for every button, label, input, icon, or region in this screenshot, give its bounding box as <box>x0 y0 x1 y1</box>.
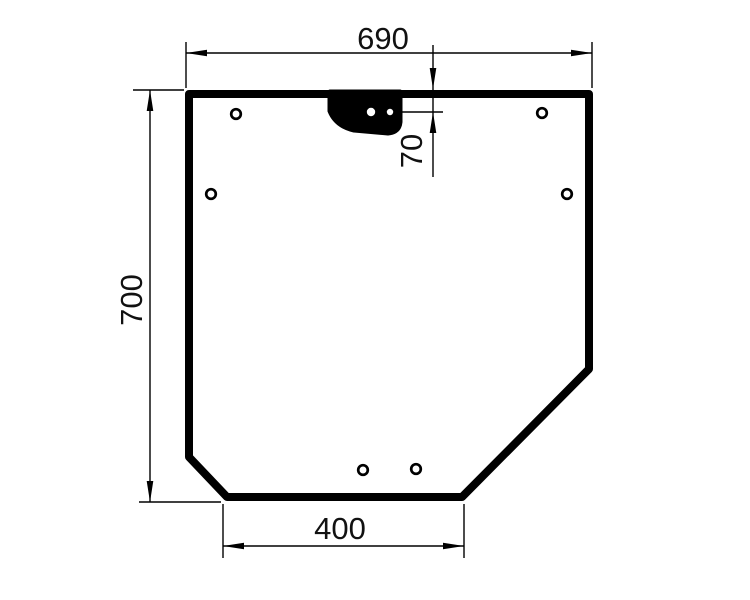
dimension-label-hole-offset: 70 <box>394 134 429 168</box>
mounting-hole <box>411 464 421 474</box>
mounting-hole <box>537 108 547 118</box>
dimension-label-bottom-width: 400 <box>314 511 366 546</box>
drawing-canvas: 690 70 700 400 <box>0 0 750 600</box>
arrowhead-right <box>443 543 464 550</box>
glass-panel-technical-drawing: 690 70 700 400 <box>0 0 750 600</box>
arrowhead-left <box>186 50 207 57</box>
glass-panel-outline <box>189 94 589 497</box>
dimension-top-width: 690 <box>186 21 592 88</box>
arrowhead-down <box>430 68 437 89</box>
dimension-label-left-height: 700 <box>114 274 149 326</box>
mounting-hole <box>206 189 216 199</box>
arrowhead-left <box>223 543 244 550</box>
arrowhead-down <box>147 481 154 502</box>
bracket-hole <box>367 108 375 116</box>
bracket-hole <box>387 109 393 115</box>
arrowhead-right <box>571 50 592 57</box>
arrowhead-up <box>147 90 154 111</box>
mounting-hole <box>358 465 368 475</box>
dimension-bottom-width: 400 <box>223 504 464 558</box>
mounting-hole <box>562 189 572 199</box>
dimension-label-top-width: 690 <box>357 21 409 56</box>
mounting-hole <box>231 109 241 119</box>
